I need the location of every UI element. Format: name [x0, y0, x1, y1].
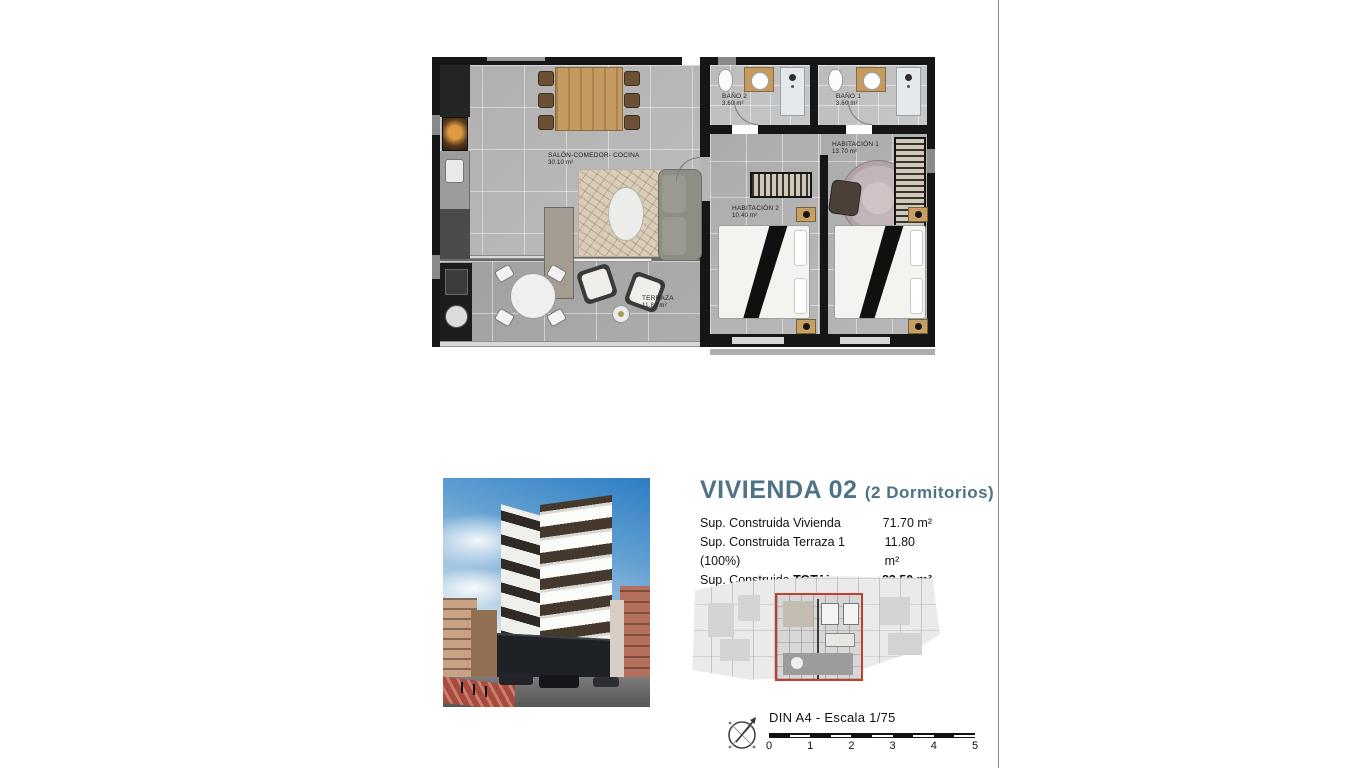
dining-chair: [624, 93, 640, 108]
unit-title: VIVIENDA 02 (2 Dormitorios): [700, 476, 932, 505]
scale-cell: [954, 735, 975, 737]
plan-shadow: [710, 349, 935, 355]
scale-cell: [851, 735, 872, 737]
utility-appliance: [445, 269, 468, 295]
room-area: 10.40 m²: [732, 213, 812, 221]
key-plan-room: [888, 633, 922, 655]
spec-label: Sup. Construida Terraza 1 (100%): [700, 533, 885, 571]
spec-row-terraza: Sup. Construida Terraza 1 (100%) 11.80 m…: [700, 533, 932, 571]
building-front-facade: [540, 495, 612, 657]
toilet: [718, 69, 733, 92]
room-label-salon: SALÓN-COMEDOR- COCINA 30.10 m²: [548, 152, 658, 168]
key-plan-room: [880, 597, 910, 625]
key-plan-room: [708, 603, 734, 637]
parked-car: [539, 675, 579, 688]
dining-chair: [538, 115, 554, 130]
wall-bath-divider: [810, 65, 818, 125]
bedroom2-window: [732, 337, 784, 344]
scale-cell: [893, 735, 914, 737]
room-label-bano1: BAÑO 1 3.60 m²: [836, 93, 906, 109]
scale-bar-cells: [769, 733, 975, 738]
coffee-table: [608, 187, 644, 241]
bed-bedroom1: [834, 225, 926, 319]
scale-cell: [934, 735, 955, 737]
key-plan-room: [720, 639, 750, 661]
washing-machine: [445, 305, 468, 328]
key-plan-bed: [821, 603, 839, 625]
wall-cap: [432, 255, 440, 279]
armchair-bedroom1: [828, 179, 862, 217]
washbasin: [856, 67, 886, 92]
scale-tick: 3: [890, 740, 896, 752]
room-name: HABITACIÓN 1: [832, 141, 879, 148]
key-plan: [690, 575, 940, 683]
terrace-plant: [618, 311, 624, 317]
parked-car: [499, 673, 533, 685]
kitchen-sink: [445, 159, 464, 183]
wall-right: [927, 57, 935, 334]
room-name: TERRAZA: [642, 295, 674, 302]
spec-value: 71.70 m²: [883, 514, 932, 533]
bed-pillow: [794, 278, 807, 315]
key-plan-room: [738, 595, 760, 621]
unit-info: VIVIENDA 02 (2 Dormitorios) Sup. Constru…: [700, 476, 932, 590]
neighbor-building-right2: [610, 600, 624, 678]
scale-cell: [769, 735, 790, 737]
terrace-balustrade: [440, 341, 700, 347]
scale-bar: 0 1 2 3 4 5: [769, 733, 975, 754]
room-name: HABITACIÓN 2: [732, 205, 779, 212]
north-arrow-icon: [723, 712, 763, 754]
bathroom1-door-opening: [846, 125, 872, 134]
dining-chair: [538, 71, 554, 86]
washbasin: [744, 67, 774, 92]
bed-bedroom2: [718, 225, 810, 319]
sofa-cushion: [662, 217, 686, 255]
room-area: 11.80 m²: [642, 303, 702, 311]
room-label-terraza: TERRAZA 11.80 m²: [642, 295, 702, 311]
scale-cell: [872, 735, 893, 737]
wardrobe-bedroom2: [750, 172, 812, 198]
room-name: SALÓN-COMEDOR- COCINA: [548, 152, 640, 159]
railing-post: [461, 682, 463, 693]
scale-cell: [790, 735, 811, 737]
document-page: SALÓN-COMEDOR- COCINA 30.10 m² BAÑO 2 3.…: [0, 0, 1366, 768]
scale-tick: 1: [807, 740, 813, 752]
neighbor-building-right: [620, 586, 650, 680]
bed-pillow: [910, 278, 923, 315]
building-photo: [443, 478, 650, 707]
scale-tick: 5: [972, 740, 978, 752]
kitchen-lower-cabinet: [440, 209, 470, 259]
toilet: [828, 69, 843, 92]
wall-left: [432, 57, 440, 347]
room-name: BAÑO 2: [722, 93, 747, 100]
room-area: 30.10 m²: [548, 160, 658, 168]
bed-pillow: [910, 230, 923, 267]
unit-title-main: VIVIENDA 02: [700, 476, 857, 504]
kitchen-tall-cabinet: [440, 65, 470, 117]
spec-value: 11.80 m²: [885, 533, 932, 571]
spec-label: Sup. Construida Vivienda: [700, 514, 841, 533]
key-plan-bed: [843, 603, 859, 625]
scale-label: DIN A4 - Escala 1/75: [769, 710, 896, 725]
scale-tick: 4: [931, 740, 937, 752]
bed-pillow: [794, 230, 807, 267]
room-area: 3.60 m²: [722, 101, 792, 109]
scale-tick: 2: [848, 740, 854, 752]
scale-cell: [831, 735, 852, 737]
room-name: BAÑO 1: [836, 93, 861, 100]
entrance-opening: [682, 57, 700, 65]
parked-car: [593, 677, 619, 687]
spec-row-vivienda: Sup. Construida Vivienda 71.70 m²: [700, 514, 932, 533]
bathroom2-door-opening: [732, 125, 758, 134]
railing-post: [485, 686, 487, 697]
shower: [780, 67, 805, 116]
key-plan-kitchen: [783, 601, 813, 627]
dining-chair: [538, 93, 554, 108]
wall-cap: [487, 57, 545, 61]
room-label-habitacion2: HABITACIÓN 2 10.40 m²: [732, 205, 812, 221]
floor-plan: SALÓN-COMEDOR- COCINA 30.10 m² BAÑO 2 3.…: [432, 57, 935, 357]
room-label-habitacion1: HABITACIÓN 1 13.70 m²: [832, 141, 912, 157]
sliding-door-panel: [462, 255, 552, 259]
dining-chair: [624, 115, 640, 130]
wall-cap: [927, 149, 935, 173]
dining-table: [555, 67, 623, 131]
scale-cell: [810, 735, 831, 737]
key-plan-highlighted-unit: [775, 593, 863, 681]
bedroom1-window: [840, 337, 890, 344]
scale-bar-numbers: 0 1 2 3 4 5: [769, 740, 975, 754]
unit-title-suffix: (2 Dormitorios): [865, 483, 994, 502]
wall-cap: [432, 115, 440, 135]
nightstand: [796, 319, 816, 334]
terrace-table: [510, 273, 556, 319]
neighbor-building-left2: [471, 610, 497, 678]
wall-bedroom-divider: [820, 155, 828, 334]
kitchen-oven: [442, 117, 468, 151]
room-area: 13.70 m²: [832, 149, 912, 157]
dining-chair: [624, 71, 640, 86]
room-label-bano2: BAÑO 2 3.60 m²: [722, 93, 792, 109]
plan-sheet: SALÓN-COMEDOR- COCINA 30.10 m² BAÑO 2 3.…: [365, 0, 998, 768]
key-plan-table: [791, 657, 803, 669]
shower: [896, 67, 921, 116]
railing-post: [473, 684, 475, 695]
scale-tick: 0: [766, 740, 772, 752]
nightstand: [908, 319, 928, 334]
key-plan-bed: [825, 633, 855, 647]
scale-cell: [913, 735, 934, 737]
nightstand: [908, 207, 928, 222]
wall-cap: [718, 57, 736, 65]
room-area: 3.60 m²: [836, 101, 906, 109]
